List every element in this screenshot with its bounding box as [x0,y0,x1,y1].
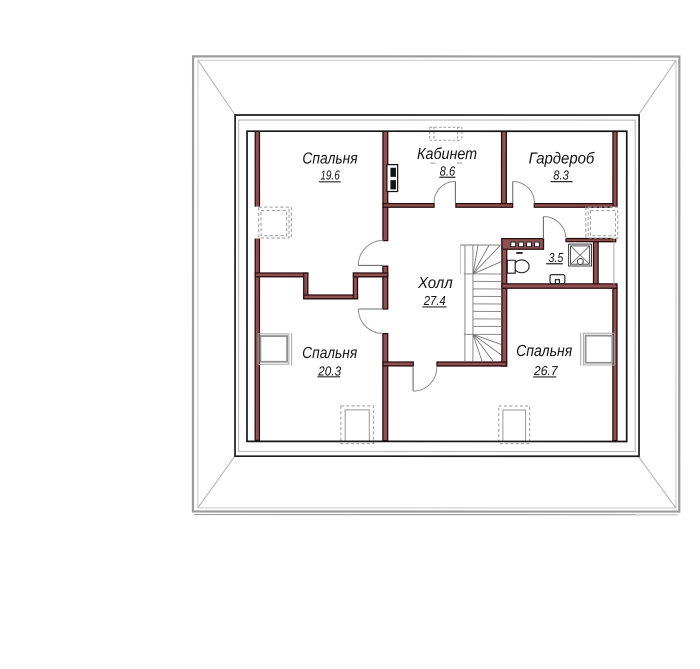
svg-text:3.5: 3.5 [549,250,564,265]
svg-text:Спальня: Спальня [302,345,357,362]
svg-text:Спальня: Спальня [302,150,358,167]
svg-text:19.6: 19.6 [320,168,340,183]
svg-text:Спальня: Спальня [516,343,572,360]
svg-text:27.4: 27.4 [423,293,446,308]
svg-text:Гардероб: Гардероб [529,151,596,168]
svg-text:26.7: 26.7 [533,363,558,378]
svg-text:Кабинет: Кабинет [417,146,477,163]
svg-text:Холл: Холл [417,275,453,292]
svg-text:8.3: 8.3 [553,167,569,182]
svg-text:8.6: 8.6 [440,163,456,178]
svg-text:20.3: 20.3 [317,363,341,378]
